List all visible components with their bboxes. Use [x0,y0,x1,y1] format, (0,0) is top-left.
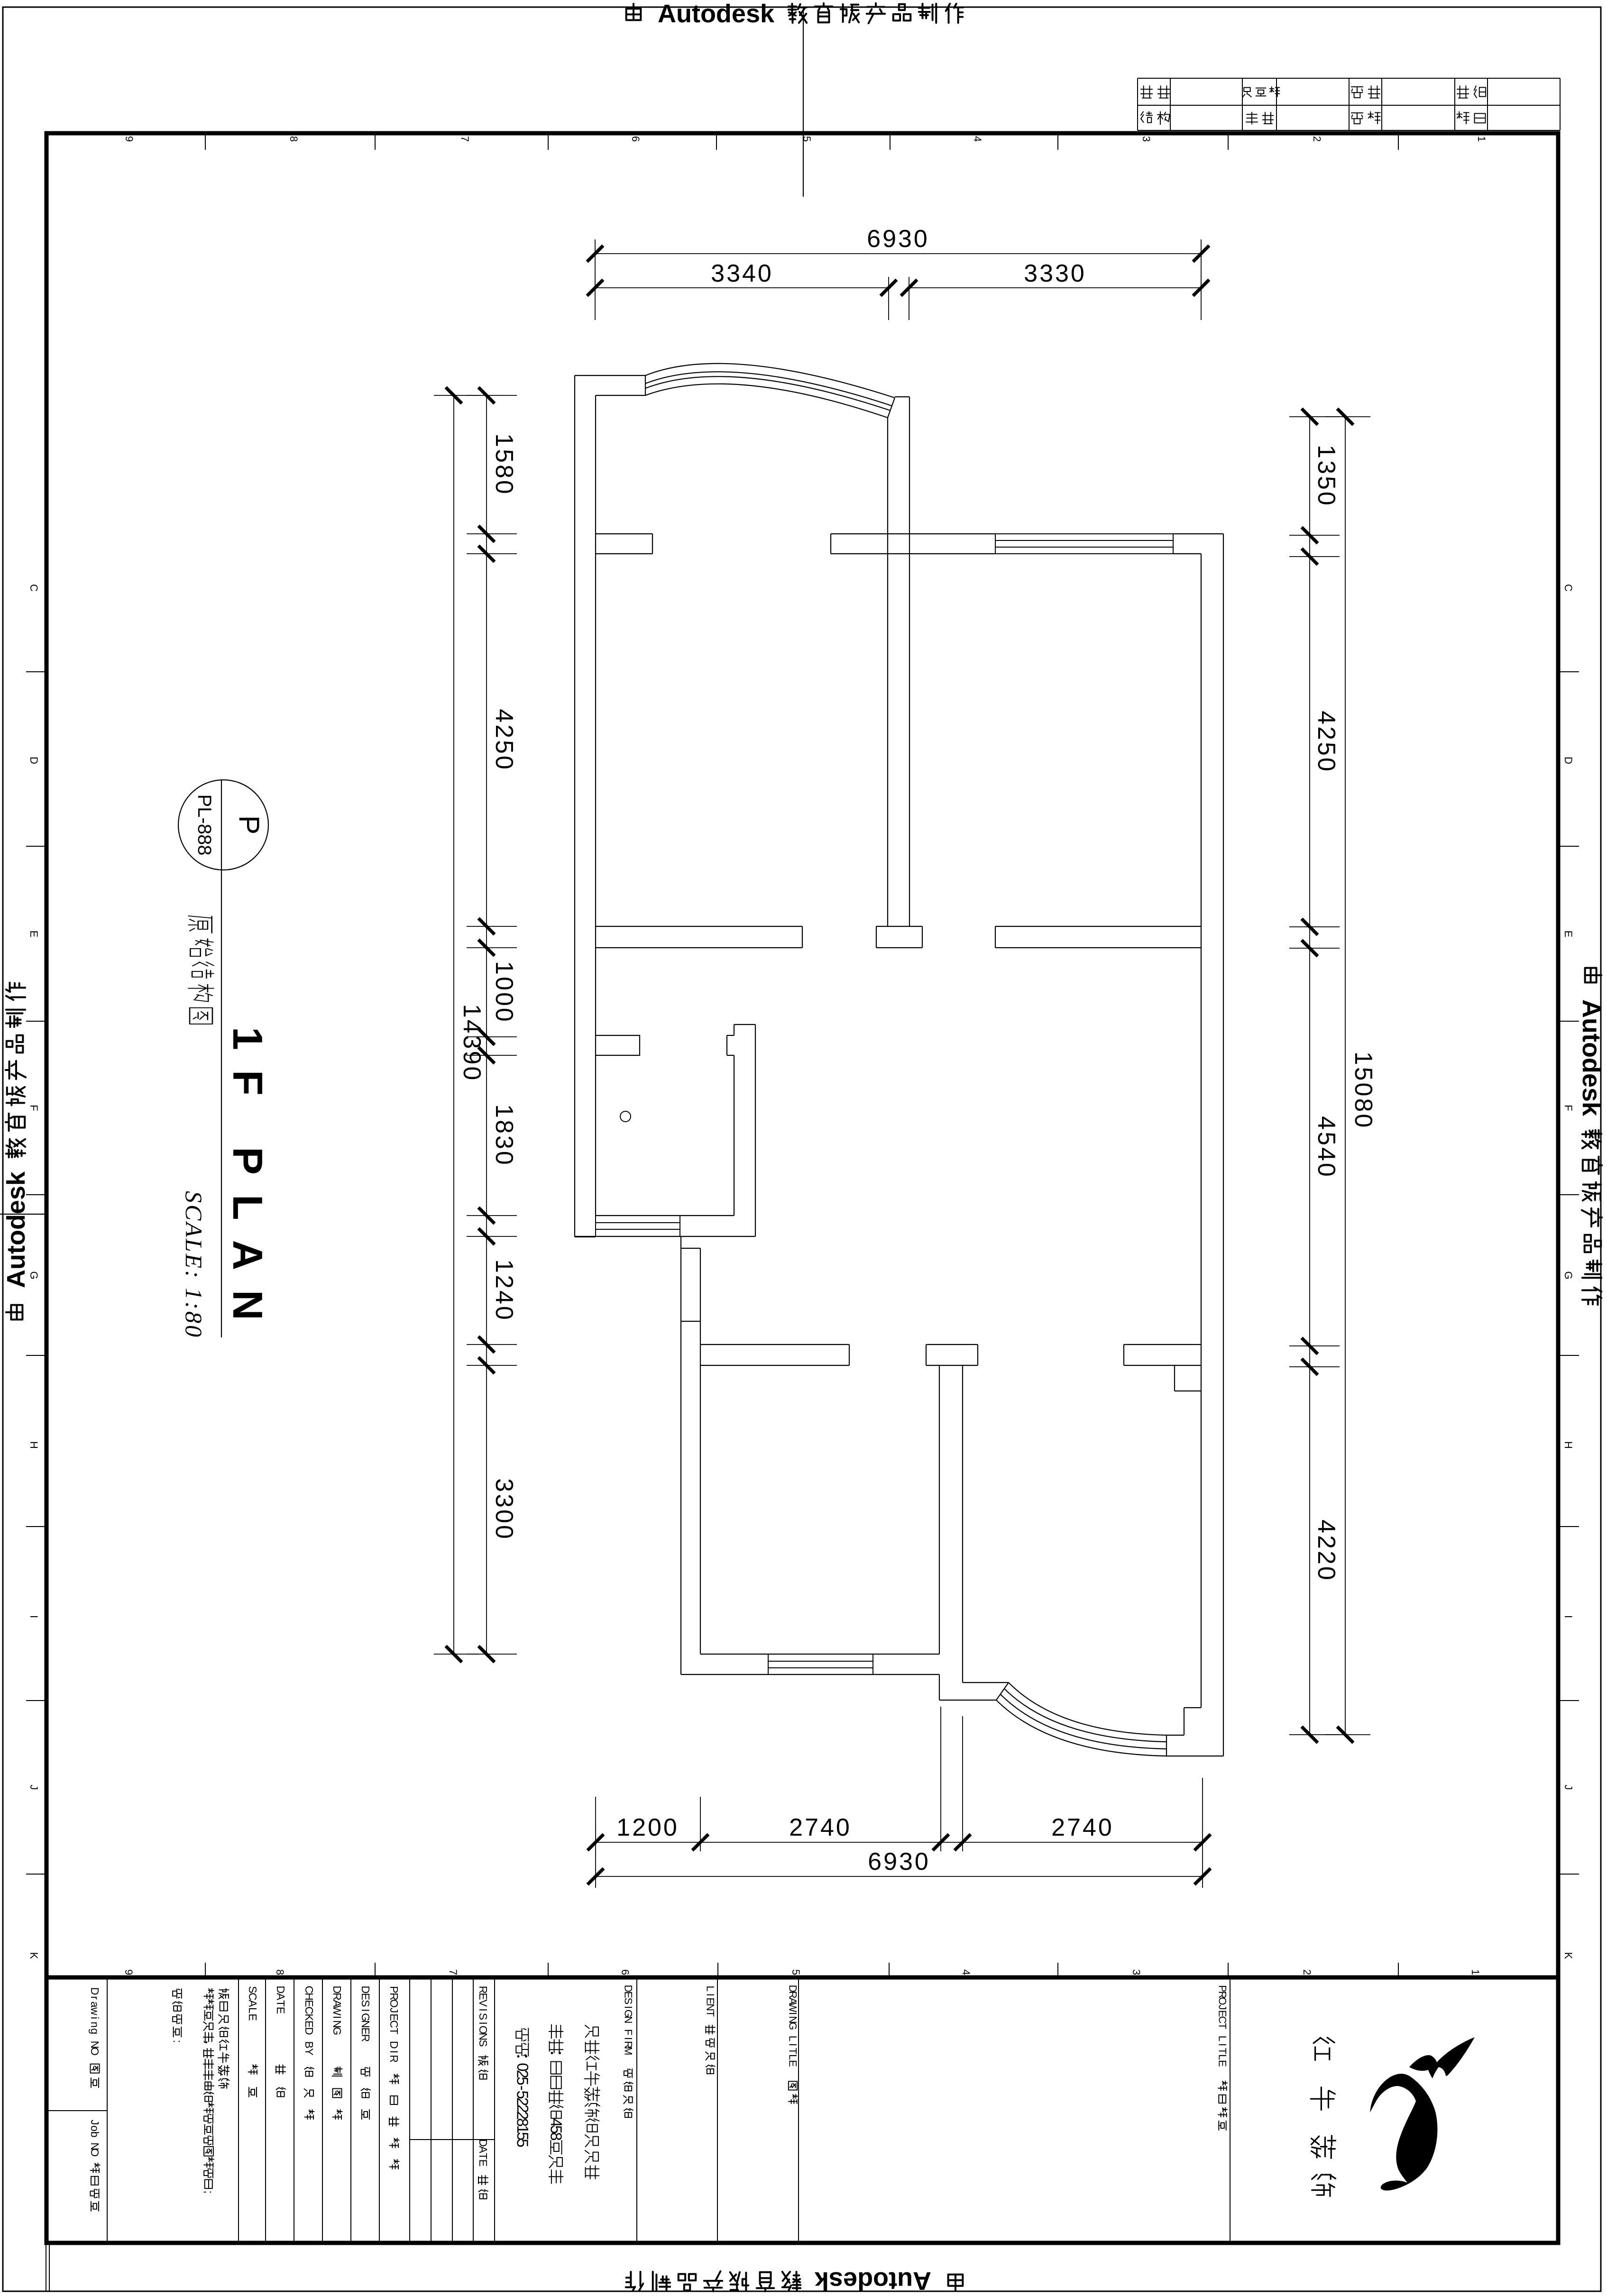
svg-text:5: 5 [790,1969,802,1975]
svg-text:C: C [303,2006,315,2014]
svg-text:E: E [787,2060,799,2067]
svg-text:2: 2 [1311,136,1323,142]
svg-text:o: o [89,2125,101,2131]
svg-text:I: I [705,1994,716,1996]
svg-text:8: 8 [274,1969,286,1975]
svg-text:G: G [28,1271,40,1279]
svg-text:8: 8 [548,2132,565,2140]
svg-text:T: T [705,2010,716,2016]
svg-text:C: C [1562,584,1574,592]
svg-text:1200: 1200 [616,1814,679,1841]
svg-text:R: R [331,1993,343,2001]
svg-text:D: D [359,1985,372,1994]
svg-text:H: H [303,1993,315,2001]
svg-text:N: N [623,2016,634,2023]
svg-text:n: n [89,2022,101,2028]
svg-text:1240: 1240 [490,1259,518,1322]
svg-text:J: J [28,1785,40,1790]
svg-text:1F PLAN: 1F PLAN [224,1027,271,1340]
svg-text:-: - [514,2086,532,2091]
svg-text:H: H [1562,1441,1574,1449]
svg-text:6: 6 [630,136,642,142]
svg-text:D: D [1562,757,1574,764]
svg-text:R: R [388,2055,400,2063]
svg-text:E: E [359,1993,372,2000]
svg-text:C: C [28,584,40,592]
svg-text:1000: 1000 [490,961,518,1024]
svg-text:C: C [388,2020,400,2028]
svg-text:I: I [359,2009,372,2012]
svg-text:O: O [89,2047,101,2056]
svg-text:6: 6 [619,1969,631,1975]
svg-text:E: E [477,1993,489,2000]
svg-text:D: D [388,2041,400,2049]
svg-text:PL-888: PL-888 [194,795,215,856]
svg-text:w: w [89,2007,101,2015]
svg-text:4: 4 [972,136,983,142]
svg-text:S: S [623,1998,634,2005]
svg-text:2740: 2740 [789,1814,852,1841]
svg-text:，: ， [202,2040,215,2051]
svg-text:E: E [247,2013,259,2021]
svg-text:6930: 6930 [867,225,929,253]
svg-text:8: 8 [288,136,300,142]
svg-text:C: C [247,1993,259,2001]
svg-text:L: L [247,2007,259,2013]
svg-text:2740: 2740 [1051,1814,1114,1841]
svg-text:1830: 1830 [490,1104,518,1167]
svg-text:4220: 4220 [1313,1519,1340,1582]
svg-text:O: O [89,2148,101,2157]
svg-text:R: R [359,2034,372,2042]
svg-text:T: T [388,2028,400,2034]
svg-text:H: H [28,1441,40,1449]
svg-text:Autodesk: Autodesk [658,0,775,28]
svg-text:O: O [388,1999,400,2008]
svg-text:G: G [331,2027,343,2035]
svg-text:Y: Y [303,2048,315,2055]
svg-text:7: 7 [447,1969,459,1975]
svg-text:Autodesk: Autodesk [2,1171,30,1288]
svg-text:3: 3 [1130,1969,1142,1975]
svg-text:W: W [787,2003,799,2012]
svg-text:4: 4 [960,1969,972,1975]
svg-text:E: E [275,2007,287,2014]
svg-text:7: 7 [459,136,471,142]
svg-text:T: T [1217,2048,1229,2054]
svg-text:I: I [1217,2043,1229,2046]
svg-text:I: I [28,1615,40,1618]
svg-text:4540: 4540 [1313,1116,1340,1179]
svg-text:;: ; [202,2190,215,2194]
svg-text:SCALE: 1:80: SCALE: 1:80 [181,1191,207,1339]
svg-text:3: 3 [1140,136,1152,142]
svg-text:B: B [303,2041,315,2049]
svg-text:T: T [275,2000,287,2007]
svg-text:14390: 14390 [458,1004,486,1082]
svg-text:9: 9 [123,136,135,142]
svg-text:T: T [1217,2023,1229,2029]
svg-text:I: I [331,2016,343,2019]
svg-text:F: F [1562,1105,1574,1111]
svg-text:I: I [787,2043,799,2046]
svg-text:5: 5 [514,2076,532,2085]
svg-text:i: i [89,2017,101,2019]
svg-text:E: E [477,2159,489,2167]
svg-text:J: J [1217,2005,1229,2010]
svg-text:L: L [705,1985,716,1991]
svg-text:L: L [1217,2036,1229,2041]
svg-text:1: 1 [1469,1969,1481,1975]
svg-text:T: T [787,2048,799,2054]
svg-text:F: F [623,2029,634,2035]
svg-text:S: S [477,2013,489,2020]
svg-text:F: F [28,1105,40,1111]
svg-text:A: A [477,2146,489,2153]
svg-text:L: L [787,2036,799,2041]
svg-text:1580: 1580 [490,433,518,496]
svg-text:4250: 4250 [490,709,518,771]
svg-text:W: W [331,2005,343,2016]
svg-text:L: L [1217,2054,1229,2060]
svg-text:G: G [787,2022,799,2030]
svg-text:15080: 15080 [1350,1052,1377,1130]
svg-text:I: I [477,2022,489,2024]
svg-text:b: b [89,2131,101,2138]
svg-text:A: A [275,1993,287,2001]
svg-text:A: A [247,2000,259,2007]
svg-text:E: E [1562,931,1574,938]
svg-text:I: I [477,2008,489,2011]
svg-text:S: S [477,2040,489,2047]
svg-text:D: D [89,1987,101,1995]
svg-text:V: V [477,2000,489,2007]
svg-text:L: L [787,2054,799,2060]
svg-text:J: J [1562,1785,1574,1790]
svg-text:I: I [1562,1615,1574,1618]
svg-text:I: I [623,2037,634,2040]
svg-text:J: J [89,2120,101,2125]
svg-text:O: O [1217,1997,1229,2005]
svg-text:D: D [275,1985,287,1994]
svg-text:5: 5 [801,136,813,142]
svg-text:J: J [388,2008,400,2013]
svg-text:5: 5 [514,2139,532,2147]
svg-text:K: K [28,1952,40,1959]
svg-text:a: a [89,2002,101,2008]
svg-text:D: D [28,757,40,764]
svg-text:4250: 4250 [1313,711,1340,773]
svg-text:1: 1 [1476,136,1488,142]
svg-text:3330: 3330 [1024,260,1086,287]
svg-text::: : [171,2040,184,2043]
svg-text:K: K [1562,1952,1574,1959]
svg-text:I: I [623,2006,634,2009]
svg-text:D: D [303,2027,315,2035]
svg-text:S: S [359,2000,372,2007]
svg-text:g: g [89,2028,101,2034]
svg-text:T: T [477,2153,489,2159]
svg-text:E: E [28,931,40,938]
svg-text:6930: 6930 [868,1848,930,1875]
svg-text:M: M [623,2047,634,2055]
svg-text:I: I [787,2012,799,2015]
svg-text:N: N [359,2020,372,2028]
svg-text:E: E [1217,2060,1229,2067]
svg-text:9: 9 [123,1969,135,1975]
svg-text:P: P [233,815,265,834]
svg-text:2: 2 [1301,1969,1313,1975]
svg-text:G: G [1562,1271,1574,1279]
svg-text:r: r [89,1996,101,2000]
svg-text:3300: 3300 [490,1478,518,1541]
svg-text:3340: 3340 [711,260,773,287]
svg-text:1350: 1350 [1313,445,1340,507]
svg-text:I: I [388,2050,400,2053]
